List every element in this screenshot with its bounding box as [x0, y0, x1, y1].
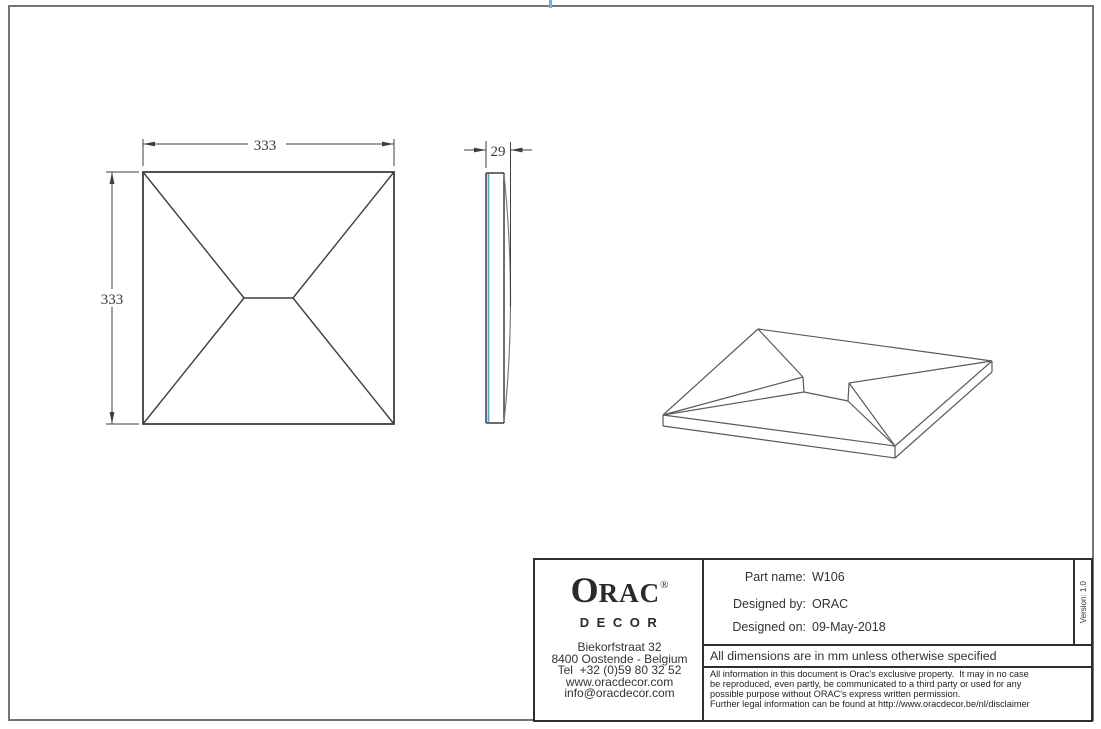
drawing-sheet: 333 333 [0, 0, 1101, 729]
side-view: 29 [464, 141, 532, 423]
company-address: Biekorfstraat 32 8400 Oostende - Belgium… [535, 642, 704, 700]
front-height-label: 333 [101, 292, 124, 308]
designed-on-value: 09-May-2018 [812, 620, 886, 634]
disclaimer-line: All information in this document is Orac… [710, 669, 1091, 679]
front-view-diagonals [143, 172, 394, 424]
address-line-email: info@oracdecor.com [535, 688, 704, 700]
title-block-divider-row2 [702, 666, 1091, 668]
logo-letters-rac: RAC [599, 578, 661, 608]
designed-on-label: Designed on: [706, 620, 806, 634]
designed-by-label: Designed by: [706, 597, 806, 611]
title-block: ORAC® DECOR Biekorfstraat 32 8400 Oosten… [533, 558, 1093, 722]
disclaimer-line: Further legal information can be found a… [710, 699, 1091, 709]
legal-disclaimer: All information in this document is Orac… [704, 669, 1091, 709]
side-thickness-label: 29 [491, 144, 506, 160]
part-name-value: W106 [812, 570, 845, 584]
logo-letter-o: O [571, 570, 599, 610]
version-cell: Version: 1.0 [1075, 560, 1091, 644]
part-name-label: Part name: [706, 570, 806, 584]
disclaimer-line: be reproduced, even partly, be communica… [710, 679, 1091, 689]
dimension-note: All dimensions are in mm unless otherwis… [704, 646, 1091, 666]
front-view: 333 333 [101, 138, 394, 424]
orac-decor-logo: ORAC® DECOR [535, 570, 704, 630]
front-width-label: 333 [254, 138, 277, 154]
logo-sub-brand: DECOR [540, 615, 704, 630]
logo-brand: ORAC® [535, 570, 704, 613]
version-label: Version: 1.0 [1079, 581, 1088, 623]
disclaimer-line: possible purpose without ORAC's express … [710, 689, 1091, 699]
side-view-profile-bulge [504, 174, 511, 422]
isometric-view [663, 329, 992, 458]
registered-trademark-icon: ® [660, 579, 668, 591]
side-thickness-dimension [464, 141, 532, 307]
designed-by-value: ORAC [812, 597, 848, 611]
